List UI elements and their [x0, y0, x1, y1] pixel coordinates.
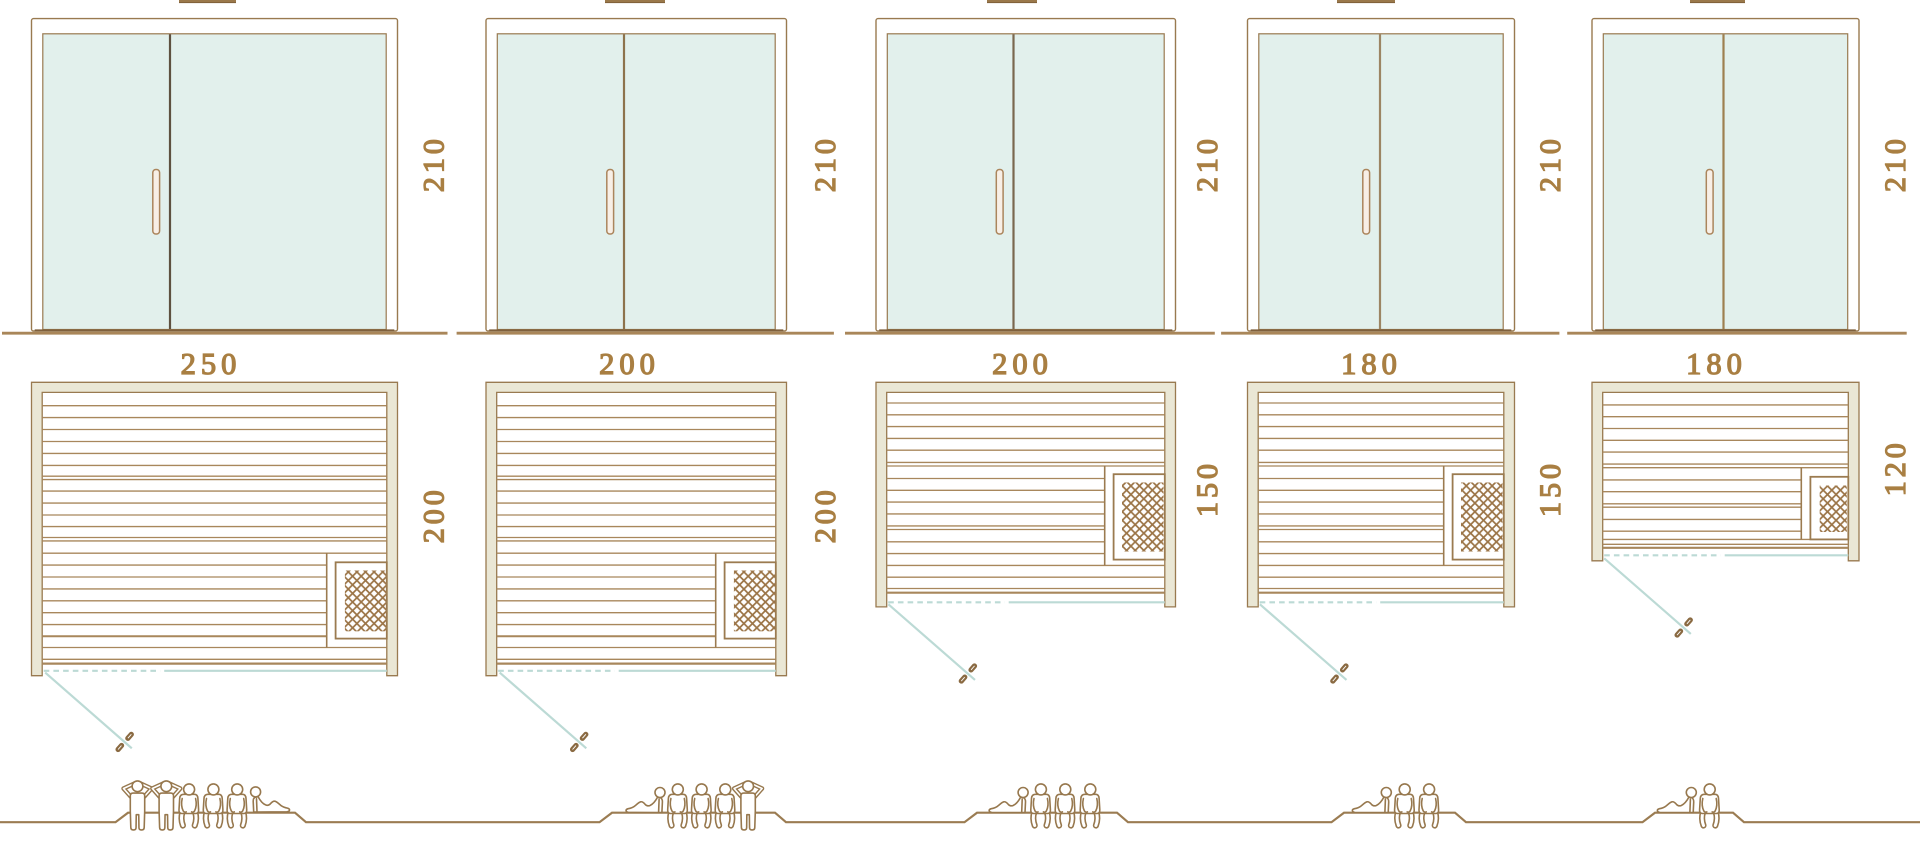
svg-text:150: 150: [1534, 460, 1567, 517]
svg-text:210: 210: [1191, 135, 1224, 192]
svg-text:200: 200: [417, 486, 450, 543]
svg-text:210: 210: [1879, 135, 1912, 192]
svg-text:210: 210: [809, 135, 842, 192]
svg-text:200: 200: [809, 486, 842, 543]
svg-text:180: 180: [1686, 347, 1747, 381]
svg-text:180: 180: [1341, 347, 1402, 381]
svg-text:120: 120: [1879, 439, 1912, 496]
svg-text:200: 200: [992, 347, 1053, 381]
svg-text:210: 210: [417, 135, 450, 192]
svg-text:200: 200: [599, 347, 660, 381]
svg-text:210: 210: [1534, 135, 1567, 192]
svg-text:150: 150: [1191, 460, 1224, 517]
svg-text:250: 250: [181, 347, 242, 381]
